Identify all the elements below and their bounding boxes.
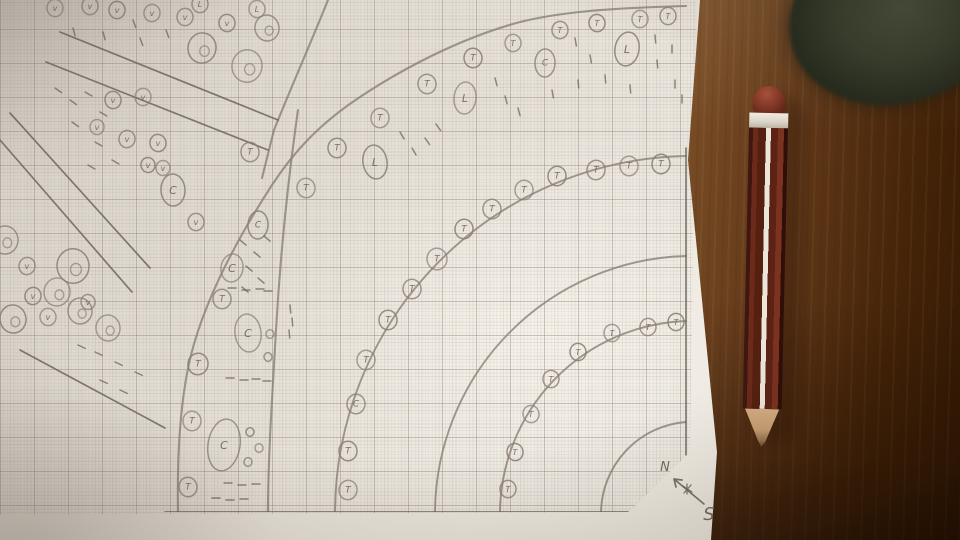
photo-scene: TTTTTTTTTTTTTTLLCLCCCTTTTTTTTTTTCTTTTTTT… [0, 0, 960, 540]
pencil [742, 86, 789, 448]
pencil-body [743, 128, 788, 410]
pencil-sharpened-tip [742, 408, 782, 447]
pencil-ferrule-band [749, 113, 788, 129]
pencil-eraser-cap [752, 86, 786, 114]
